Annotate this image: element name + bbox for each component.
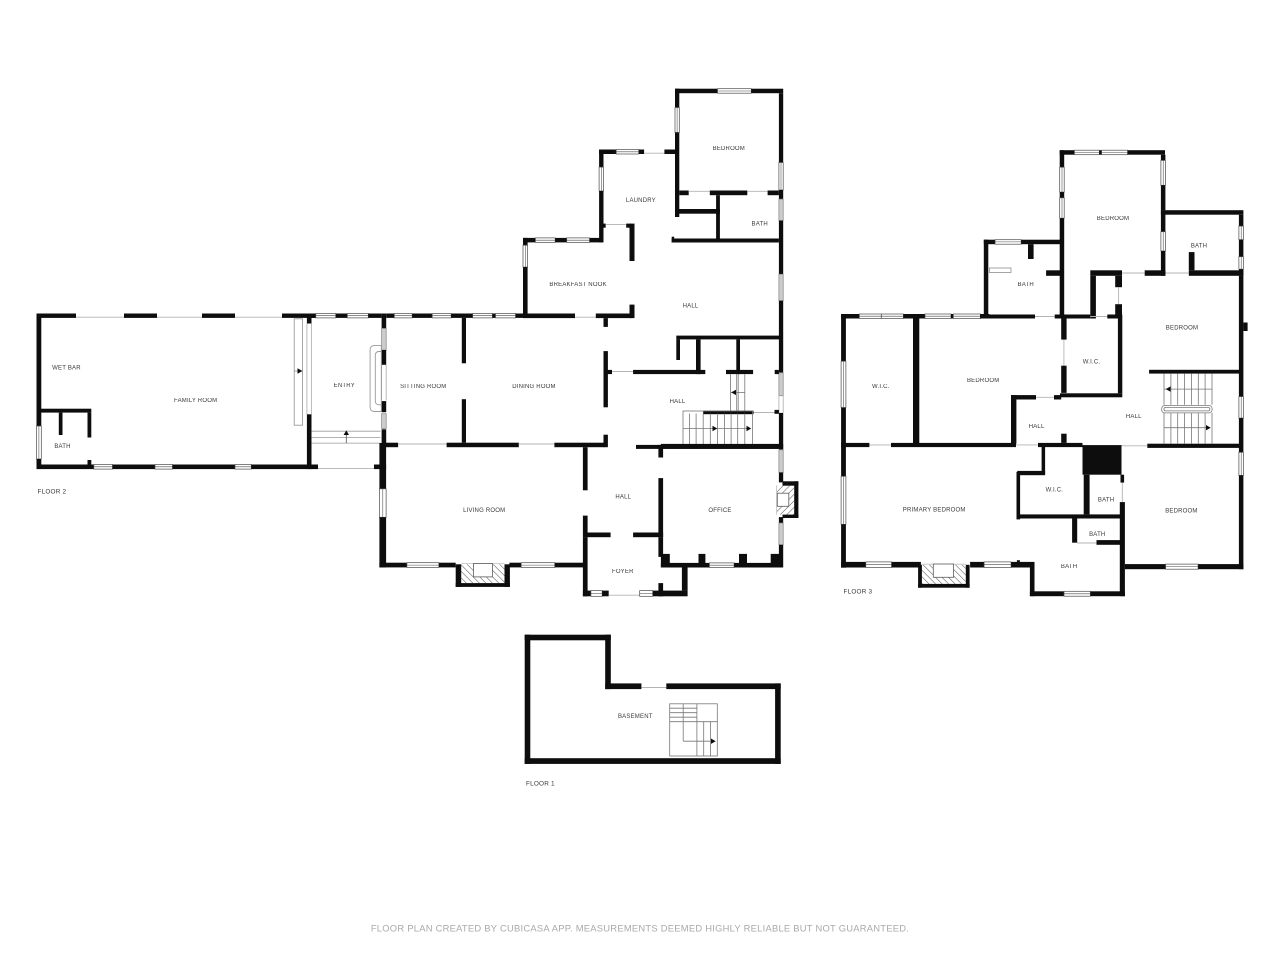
svg-text:WET BAR: WET BAR [52,366,81,372]
svg-text:HALL: HALL [683,304,699,310]
svg-text:FLOOR 2: FLOOR 2 [38,489,67,496]
svg-text:HALL: HALL [615,495,631,501]
svg-text:BEDROOM: BEDROOM [1097,216,1129,222]
svg-text:FOYER: FOYER [612,569,634,575]
svg-text:FLOOR PLAN CREATED BY CUBICASA: FLOOR PLAN CREATED BY CUBICASA APP. MEAS… [371,922,909,933]
svg-text:PRIMARY BEDROOM: PRIMARY BEDROOM [903,508,966,514]
svg-text:BATH: BATH [1098,498,1114,504]
svg-text:BATH: BATH [54,444,70,450]
svg-text:SITTING ROOM: SITTING ROOM [400,384,446,390]
svg-text:W.I.C.: W.I.C. [1083,360,1101,366]
svg-text:BASEMENT: BASEMENT [618,714,653,720]
svg-text:ENTRY: ENTRY [334,383,355,389]
svg-text:BATH: BATH [1089,532,1105,538]
svg-text:BATH: BATH [1018,282,1034,288]
svg-text:LAUNDRY: LAUNDRY [626,198,656,204]
svg-text:LIVING ROOM: LIVING ROOM [463,508,505,514]
svg-text:FLOOR 1: FLOOR 1 [526,781,555,788]
svg-text:BEDROOM: BEDROOM [713,146,745,152]
svg-text:OFFICE: OFFICE [708,508,731,514]
svg-text:BEDROOM: BEDROOM [1165,509,1197,515]
svg-text:HALL: HALL [1126,414,1142,420]
svg-text:BEDROOM: BEDROOM [967,378,999,384]
svg-text:HALL: HALL [1029,424,1045,430]
svg-text:W.I.C.: W.I.C. [1046,488,1064,494]
svg-text:BATH: BATH [1061,564,1077,570]
svg-text:BATH: BATH [752,222,768,228]
svg-text:DINING ROOM: DINING ROOM [512,384,556,390]
svg-text:FLOOR 3: FLOOR 3 [844,589,873,596]
svg-text:BATH: BATH [1191,244,1207,250]
svg-text:FAMILY ROOM: FAMILY ROOM [174,398,217,404]
svg-text:HALL: HALL [670,399,686,405]
svg-text:BEDROOM: BEDROOM [1166,326,1198,332]
svg-text:BREAKFAST NOOK: BREAKFAST NOOK [549,282,606,288]
svg-text:W.I.C.: W.I.C. [872,384,890,390]
